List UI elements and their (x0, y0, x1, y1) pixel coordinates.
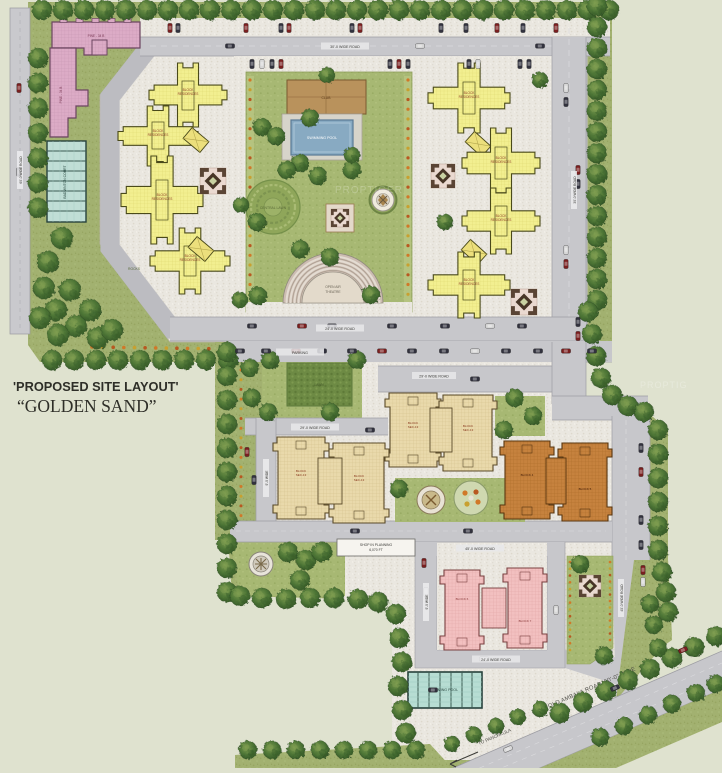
svg-text:PROPTIGER: PROPTIGER (335, 185, 403, 196)
svg-text:RESIDENCES: RESIDENCES (491, 218, 512, 222)
svg-text:29'-0 WIDE ROAD: 29'-0 WIDE ROAD (419, 375, 449, 379)
svg-text:CENTRAL LAWN: CENTRAL LAWN (260, 206, 287, 210)
svg-text:BLOCK 4: BLOCK 4 (521, 473, 534, 477)
svg-text:24'-0 WIDE ROAD: 24'-0 WIDE ROAD (481, 658, 511, 662)
svg-text:60'-0 WIDE ROAD: 60'-0 WIDE ROAD (19, 156, 23, 184)
svg-text:30'-0 WIDE ROAD: 30'-0 WIDE ROAD (573, 176, 577, 204)
svg-text:24'-0 WIDE ROAD: 24'-0 WIDE ROAD (325, 327, 355, 331)
svg-text:BLOCK 7: BLOCK 7 (519, 619, 532, 623)
svg-text:SEC-13: SEC-13 (408, 425, 419, 429)
svg-text:RESIDENCES: RESIDENCES (491, 160, 512, 164)
svg-text:PINE - 34 B: PINE - 34 B (88, 34, 105, 38)
svg-text:LAWN: LAWN (314, 383, 324, 387)
svg-text:“GOLDEN SAND”: “GOLDEN SAND” (17, 396, 157, 416)
svg-text:CLUB: CLUB (321, 96, 331, 100)
svg-text:ROCKS: ROCKS (128, 267, 141, 271)
svg-text:SEC-13: SEC-13 (354, 478, 365, 482)
svg-text:SWIMMING POOL: SWIMMING POOL (307, 136, 337, 140)
svg-text:OPEN AIR: OPEN AIR (325, 285, 341, 289)
svg-text:RESIDENCES: RESIDENCES (152, 197, 173, 201)
svg-text:45'-0 WIDE ROAD: 45'-0 WIDE ROAD (620, 584, 624, 612)
svg-text:29'-0 WIDE ROAD: 29'-0 WIDE ROAD (300, 426, 330, 430)
svg-text:30'-0 WIDE ROAD: 30'-0 WIDE ROAD (330, 45, 360, 49)
svg-text:BLOCK 5: BLOCK 5 (579, 487, 592, 491)
svg-text:9'-0 WIDE: 9'-0 WIDE (265, 470, 269, 486)
svg-text:PROPTIG: PROPTIG (640, 380, 688, 390)
svg-text:BLOCK 6: BLOCK 6 (456, 597, 469, 601)
svg-text:9'-0 WIDE: 9'-0 WIDE (425, 594, 429, 610)
svg-text:RESIDENCES: RESIDENCES (180, 258, 201, 262)
svg-text:RESIDENCES: RESIDENCES (148, 133, 169, 137)
svg-text:RESIDENCES: RESIDENCES (178, 92, 199, 96)
svg-text:PINE - 34 B: PINE - 34 B (59, 87, 63, 104)
svg-text:SEC-13: SEC-13 (296, 473, 307, 477)
svg-text:PARKING: PARKING (292, 351, 308, 355)
svg-text:SHOP IN PLANNING: SHOP IN PLANNING (360, 543, 393, 547)
svg-text:BADMINTON COURT: BADMINTON COURT (63, 165, 67, 198)
svg-text:45'-0 WIDE ROAD: 45'-0 WIDE ROAD (465, 547, 495, 551)
svg-text:'PROPOSED SITE LAYOUT': 'PROPOSED SITE LAYOUT' (13, 379, 179, 394)
svg-text:THEATRE: THEATRE (325, 290, 341, 294)
svg-text:RESIDENCES: RESIDENCES (459, 282, 480, 286)
svg-text:SEC-13: SEC-13 (463, 428, 474, 432)
svg-text:6,070 FT: 6,070 FT (369, 548, 383, 552)
svg-text:RESIDENCES: RESIDENCES (459, 95, 480, 99)
